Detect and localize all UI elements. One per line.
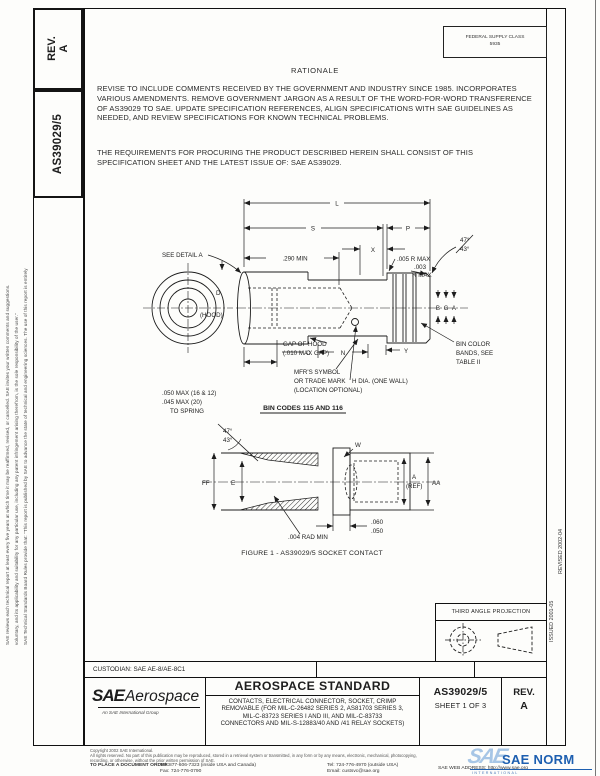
copyright-block: Copyright 2002 SAE International. All ri… [90, 748, 520, 764]
dim-label-x: X [371, 247, 375, 254]
requirements-paragraph: THE REQUIREMENTS FOR PROCURING THE PRODU… [97, 148, 533, 168]
band-b-label: B [436, 305, 440, 312]
revision-label: REV. [502, 687, 546, 698]
standard-type-heading: AEROSPACE STANDARD [206, 678, 419, 696]
frame-left-divider [83, 8, 85, 746]
title-line-3: MIL-C-83723 SERIES I AND III, AND MIL-C-… [206, 713, 419, 720]
custodian-cell-2 [317, 662, 475, 677]
bin-color-label-2: BANDS, SEE [456, 350, 493, 357]
title-block: SAEAerospace An SAE International Group … [84, 678, 546, 746]
federal-supply-class-stamp: FEDERAL SUPPLY CLASS 5935 [443, 26, 547, 58]
scanned-standard-page: SAE Technical Standards Board Rules prov… [0, 0, 600, 776]
dim-label-s: S [311, 226, 315, 233]
title-line-2: REMOVABLE (FOR MIL-C-26482 SERIES 2, AS8… [206, 705, 419, 712]
bin-color-label-3: TABLE II [456, 359, 481, 366]
custodian-label: CUSTODIAN: SAE AE-8/AE-8C1 [84, 662, 317, 677]
document-number: AS39029/5 [420, 687, 501, 698]
title-line-4: CONNECTORS AND MIL-S-12883/40 AND /41 RE… [206, 720, 419, 727]
rad-004-min-label: .004 RAD MIN [288, 534, 328, 541]
revision-value: A [502, 700, 546, 712]
detail-angle-47-label: 47° [223, 428, 233, 435]
radius-005-label: .005 R MAX [397, 256, 430, 263]
order-label: TO PLACE A DOCUMENT ORDER: [90, 763, 169, 769]
bin-color-label-1: BIN COLOR [456, 341, 491, 348]
h-dia-label: H DIA. (ONE WALL) [352, 378, 408, 385]
margin-disclaimer-line3: SAE reviews each technical report at lea… [5, 285, 10, 645]
mfr-symbol-label-1: MFR'S SYMBOL [294, 369, 341, 376]
issued-date: ISSUED 2001-05 [549, 601, 555, 642]
doc-number-tab-box: AS39029/5 [33, 90, 83, 198]
dim-label-290min: .290 MIN [282, 256, 307, 263]
dim-label-d: D [216, 290, 221, 297]
dim-label-050: .050 [371, 528, 384, 535]
doc-number-vertical: AS39029/5 [52, 114, 64, 174]
figure-caption: FIGURE 1 - AS39029/5 SOCKET CONTACT [241, 550, 383, 557]
gap-max-label: (.010 MAX GAP) [283, 350, 329, 357]
document-number-cell: AS39029/5 SHEET 1 OF 3 [420, 678, 502, 746]
rationale-heading: RATIONALE [90, 66, 540, 75]
standard-title-cell: AEROSPACE STANDARD CONTACTS, ELECTRICAL … [206, 678, 420, 746]
dim-label-w: W [355, 442, 361, 449]
dim-label-l: L [335, 201, 339, 208]
third-angle-projection-symbol [436, 621, 545, 660]
logo-subtitle: An SAE International Group [102, 710, 205, 715]
mfr-symbol-label-2: OR TRADE MARK [294, 378, 346, 385]
sae-logo-text: SAE [92, 686, 124, 705]
aerospace-logo-text: Aerospace [125, 688, 199, 705]
dim-label-ff: FF [202, 480, 210, 487]
order-fax: Fax: 724-776-0790 [160, 769, 201, 775]
technical-drawing: L S P .290 MIN X SEE DETAIL A D (HOOD) .… [90, 195, 530, 570]
radius-003-label: .003 [414, 264, 427, 271]
angle-47-label: 47° [460, 237, 470, 244]
third-angle-projection-label: THIRD ANGLE PROJECTION [436, 604, 546, 621]
sae-norm-text: SAE NORM [502, 752, 574, 767]
margin-disclaimer-line1: SAE Technical Standards Board Rules prov… [23, 268, 28, 645]
dim-label-aa: AA [432, 480, 441, 487]
spring-dim-050-label: .050 MAX (16 & 12) [162, 390, 216, 397]
sae-aerospace-logo: SAEAerospace An SAE International Group [84, 678, 206, 746]
rev-label: REV. [46, 37, 58, 62]
dim-label-y: Y [404, 348, 408, 355]
spring-dim-045-label: .045 MAX (20) [162, 399, 202, 406]
rev-tab-text: REV. A [46, 37, 69, 62]
dim-label-p: P [406, 226, 410, 233]
dim-label-a: A [412, 474, 417, 481]
band-a-label: A [452, 305, 457, 312]
dim-label-n: N [341, 350, 345, 357]
gap-of-hood-label: GAP OF HOOD [283, 341, 327, 348]
rev-tab-box: REV. A [33, 8, 83, 90]
order-email: Email: custsvc@sae.org [327, 769, 380, 775]
third-angle-projection-box: THIRD ANGLE PROJECTION [435, 603, 547, 662]
to-spring-label: TO SPRING [170, 408, 204, 415]
hood-label: (HOOD) [200, 312, 223, 319]
radius-003-max-label: R MAX [412, 272, 432, 279]
rev-value: A [58, 37, 70, 62]
detail-angle-43-label: 43° [223, 437, 233, 444]
revised-date: REVISED 2002-04 [558, 529, 564, 574]
see-detail-a-label: SEE DETAIL A [162, 252, 203, 259]
dim-label-060: .060 [371, 519, 384, 526]
supply-class-line2: 5935 [444, 42, 546, 49]
watermark-subtitle: INTERNATIONAL [472, 771, 519, 775]
watermark-rule [470, 769, 592, 770]
angle-43-label: 43° [460, 246, 470, 253]
standard-title-lines: CONTACTS, ELECTRICAL CONNECTOR, SOCKET, … [206, 696, 419, 727]
sheet-number: SHEET 1 OF 3 [420, 701, 501, 710]
mfr-symbol-label-3: (LOCATION OPTIONAL) [294, 387, 362, 394]
sae-norm-watermark: SAE SAE NORM INTERNATIONAL [468, 748, 598, 776]
title-line-1: CONTACTS, ELECTRICAL CONNECTOR, SOCKET, … [206, 698, 419, 705]
inspection-hole [352, 319, 359, 326]
dim-label-e: E [231, 480, 235, 487]
dim-label-a-ref: (REF) [406, 483, 423, 490]
bin-codes-heading: BIN CODES 115 AND 116 [263, 405, 343, 412]
band-g-label: G [444, 305, 449, 312]
margin-disclaimer-line2: voluntary, and its applicability and sui… [14, 313, 19, 645]
custodian-row: CUSTODIAN: SAE AE-8/AE-8C1 [84, 661, 546, 678]
custodian-cell-3 [475, 662, 546, 677]
detail-a-section-view [202, 424, 442, 534]
revision-cell: REV. A [502, 678, 546, 746]
rationale-body: REVISE TO INCLUDE COMMENTS RECEIVED BY T… [97, 84, 533, 123]
scan-edge-line [595, 0, 596, 776]
logo-underline [98, 707, 200, 708]
